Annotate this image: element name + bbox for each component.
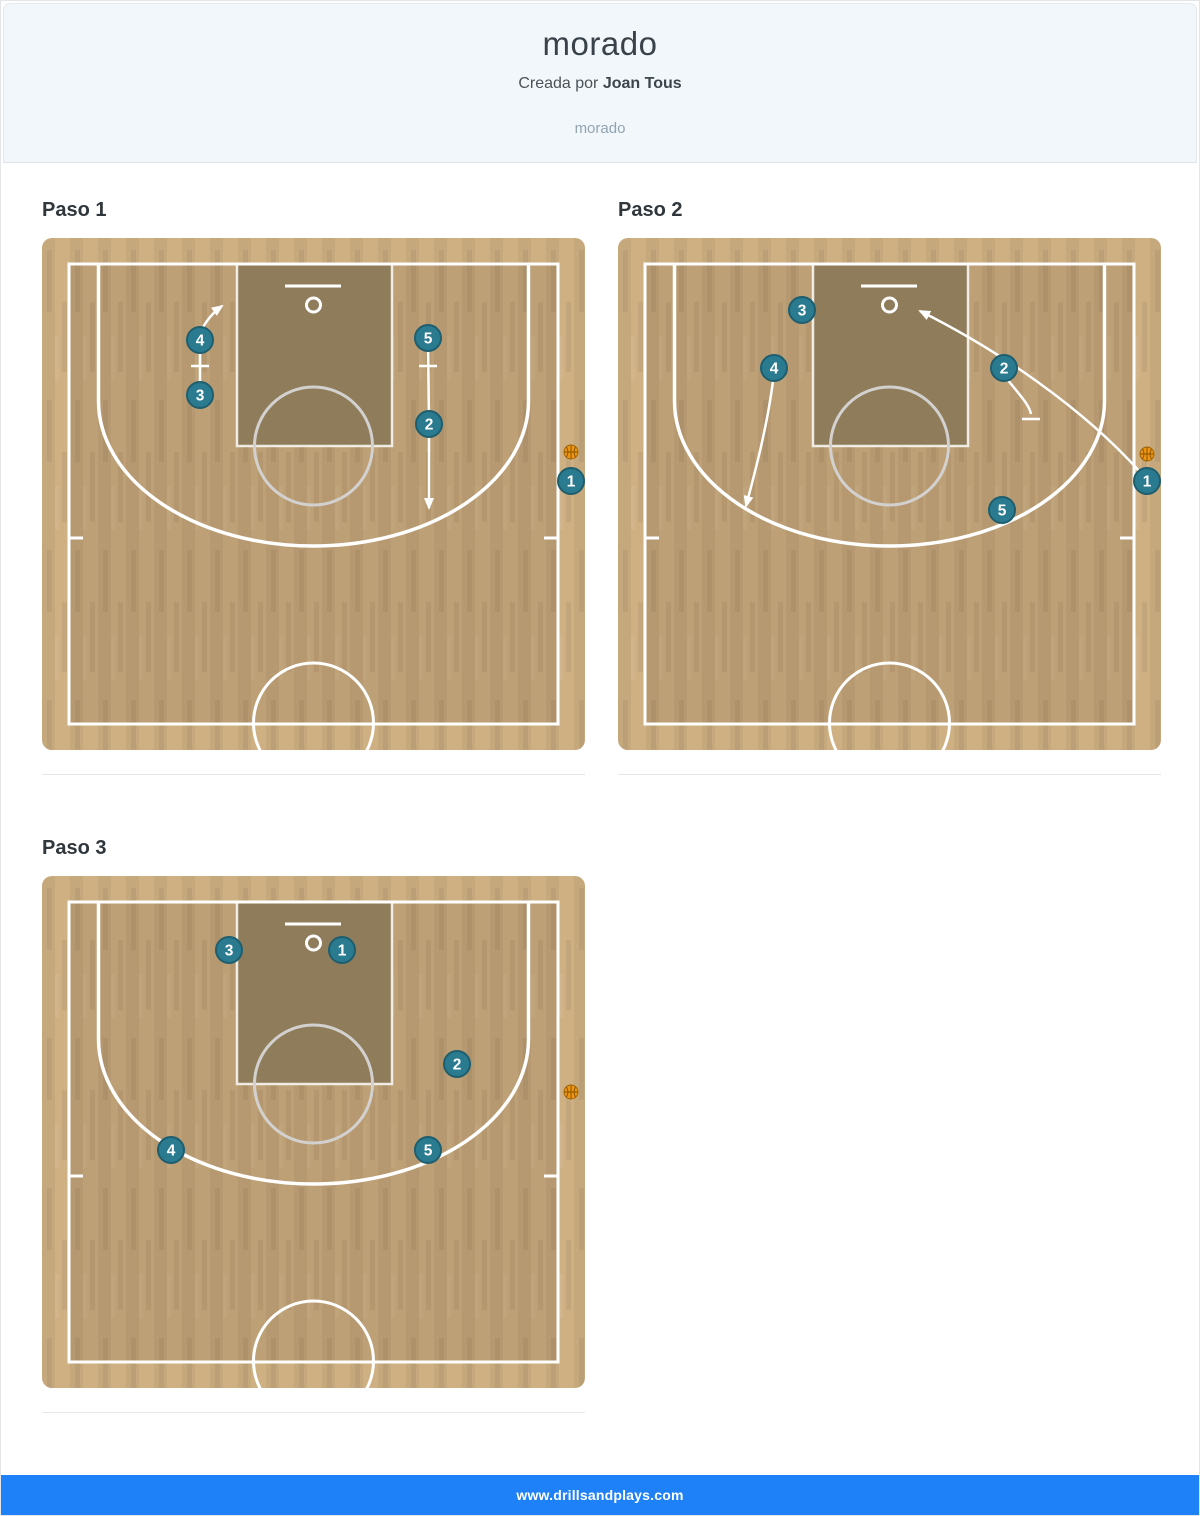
player-marker: 3	[216, 937, 242, 963]
player-marker: 5	[989, 497, 1015, 523]
player-number: 4	[167, 1143, 176, 1160]
player-marker: 4	[158, 1137, 184, 1163]
footer-bar: www.drillsandplays.com	[1, 1475, 1199, 1515]
player-number: 3	[196, 388, 205, 405]
created-by-prefix: Creada por	[518, 75, 598, 92]
player-number: 3	[798, 303, 807, 320]
player-number: 2	[1000, 361, 1009, 378]
player-number: 1	[338, 943, 347, 960]
play-title: morado	[4, 25, 1196, 63]
player-marker: 4	[761, 355, 787, 381]
player-marker: 2	[416, 411, 442, 437]
player-number: 5	[424, 1143, 433, 1160]
player-marker: 1	[558, 468, 584, 494]
player-number: 4	[770, 361, 779, 378]
player-marker: 5	[415, 1137, 441, 1163]
basketball-icon	[564, 445, 578, 459]
player-marker: 1	[329, 937, 355, 963]
player-marker: 1	[1134, 468, 1160, 494]
player-marker: 2	[991, 355, 1017, 381]
step-block: Paso 1 4 3 5	[42, 199, 585, 775]
player-number: 1	[567, 474, 576, 491]
player-marker: 3	[789, 297, 815, 323]
footer-link[interactable]: www.drillsandplays.com	[516, 1487, 683, 1503]
player-number: 2	[453, 1057, 462, 1074]
steps-section: Paso 1 4 3 5	[1, 163, 1199, 1475]
court-diagram: 4 3 5 2 1	[42, 238, 585, 750]
player-number: 5	[424, 331, 433, 348]
steps-grid: Paso 1 4 3 5	[42, 199, 1159, 1475]
header: morado Creada por Joan Tous morado	[3, 3, 1197, 163]
step-block: Paso 2 3 4 2 5 1	[618, 199, 1161, 775]
player-marker: 4	[187, 327, 213, 353]
play-subtitle: morado	[4, 120, 1196, 137]
step-title: Paso 1	[42, 199, 585, 222]
basketball-icon	[1140, 447, 1154, 461]
court-container: 4 3 5 2 1	[42, 238, 585, 775]
player-marker: 2	[444, 1051, 470, 1077]
step-title: Paso 3	[42, 837, 585, 860]
created-by: Creada por Joan Tous	[4, 75, 1196, 93]
basketball-icon	[564, 1085, 578, 1099]
court-container: 3 1 2 4 5	[42, 876, 585, 1413]
step-block: Paso 3 3 1 2 4 5	[42, 837, 585, 1413]
player-number: 5	[998, 503, 1007, 520]
player-marker: 3	[187, 382, 213, 408]
player-marker: 5	[415, 325, 441, 351]
court-diagram: 3 4 2 5 1	[618, 238, 1161, 750]
court-diagram: 3 1 2 4 5	[42, 876, 585, 1388]
court-container: 3 4 2 5 1	[618, 238, 1161, 775]
player-number: 1	[1143, 474, 1152, 491]
player-number: 3	[225, 943, 234, 960]
step-title: Paso 2	[618, 199, 1161, 222]
author-name: Joan Tous	[603, 75, 682, 92]
player-number: 4	[196, 333, 205, 350]
player-number: 2	[425, 417, 434, 434]
